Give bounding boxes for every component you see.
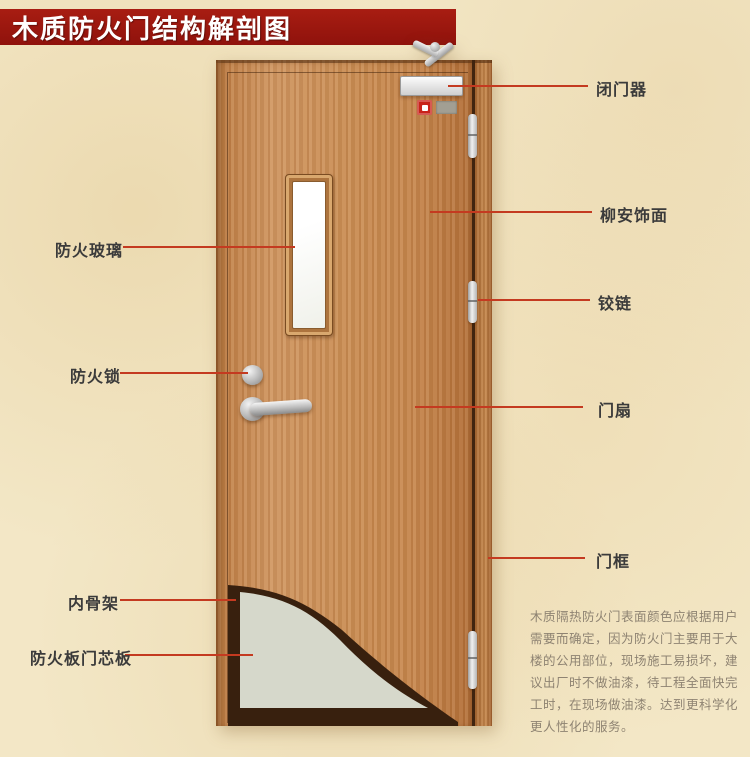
description-line: 需要而确定，因为防火门主要用于大 <box>530 628 742 650</box>
leader-line-door-frame <box>488 557 585 559</box>
label-fire-glass: 防火玻璃 <box>55 237 123 261</box>
label-fire-board-core: 防火板门芯板 <box>30 645 132 669</box>
description-line: 更人性化的服务。 <box>530 716 742 738</box>
label-fire-lock: 防火锁 <box>70 363 121 387</box>
description-line: 楼的公用部位，现场施工易损坏，建 <box>530 650 742 672</box>
leader-line-lauan-veneer <box>430 211 592 213</box>
door-illustration <box>216 60 492 726</box>
door-label-plate <box>417 100 432 115</box>
description-line: 议出厂时不做油漆，待工程全面快完 <box>530 672 742 694</box>
label-inner-skeleton: 内骨架 <box>68 590 119 614</box>
label-door-frame: 门框 <box>596 548 630 572</box>
label-door-leaf: 门扇 <box>598 397 632 421</box>
page-title: 木质防火门结构解剖图 <box>0 9 456 45</box>
door-frame-jamb <box>475 60 492 726</box>
door-label-plate-dot <box>422 105 428 111</box>
door-core-cutaway <box>222 580 474 726</box>
fire-glass-window <box>285 174 333 336</box>
page-title-text: 木质防火门结构解剖图 <box>12 9 292 46</box>
fire-glass-pane <box>292 181 326 329</box>
label-door-closer: 闭门器 <box>596 76 647 100</box>
leader-line-inner-skeleton <box>120 599 236 601</box>
label-hinge: 铰链 <box>598 290 632 314</box>
door-nameplate <box>436 101 457 114</box>
leader-line-fire-glass <box>123 246 295 248</box>
description-text: 木质隔热防火门表面颜色应根据用户 需要而确定，因为防火门主要用于大 楼的公用部位… <box>530 606 742 738</box>
leader-line-door-closer <box>448 85 588 87</box>
leader-line-door-leaf <box>415 406 583 408</box>
leader-line-fire-board-core <box>125 654 253 656</box>
fire-lock-cylinder <box>242 365 263 385</box>
hinge-top <box>468 114 477 158</box>
door-closer-knuckle <box>430 42 440 52</box>
label-lauan-veneer: 柳安饰面 <box>600 202 668 226</box>
leader-line-hinge <box>478 299 590 301</box>
leader-line-fire-lock <box>120 372 248 374</box>
hinge-middle <box>468 281 477 323</box>
description-line: 木质隔热防火门表面颜色应根据用户 <box>530 606 742 628</box>
description-line: 工时，在现场做油漆。达到更科学化 <box>530 694 742 716</box>
